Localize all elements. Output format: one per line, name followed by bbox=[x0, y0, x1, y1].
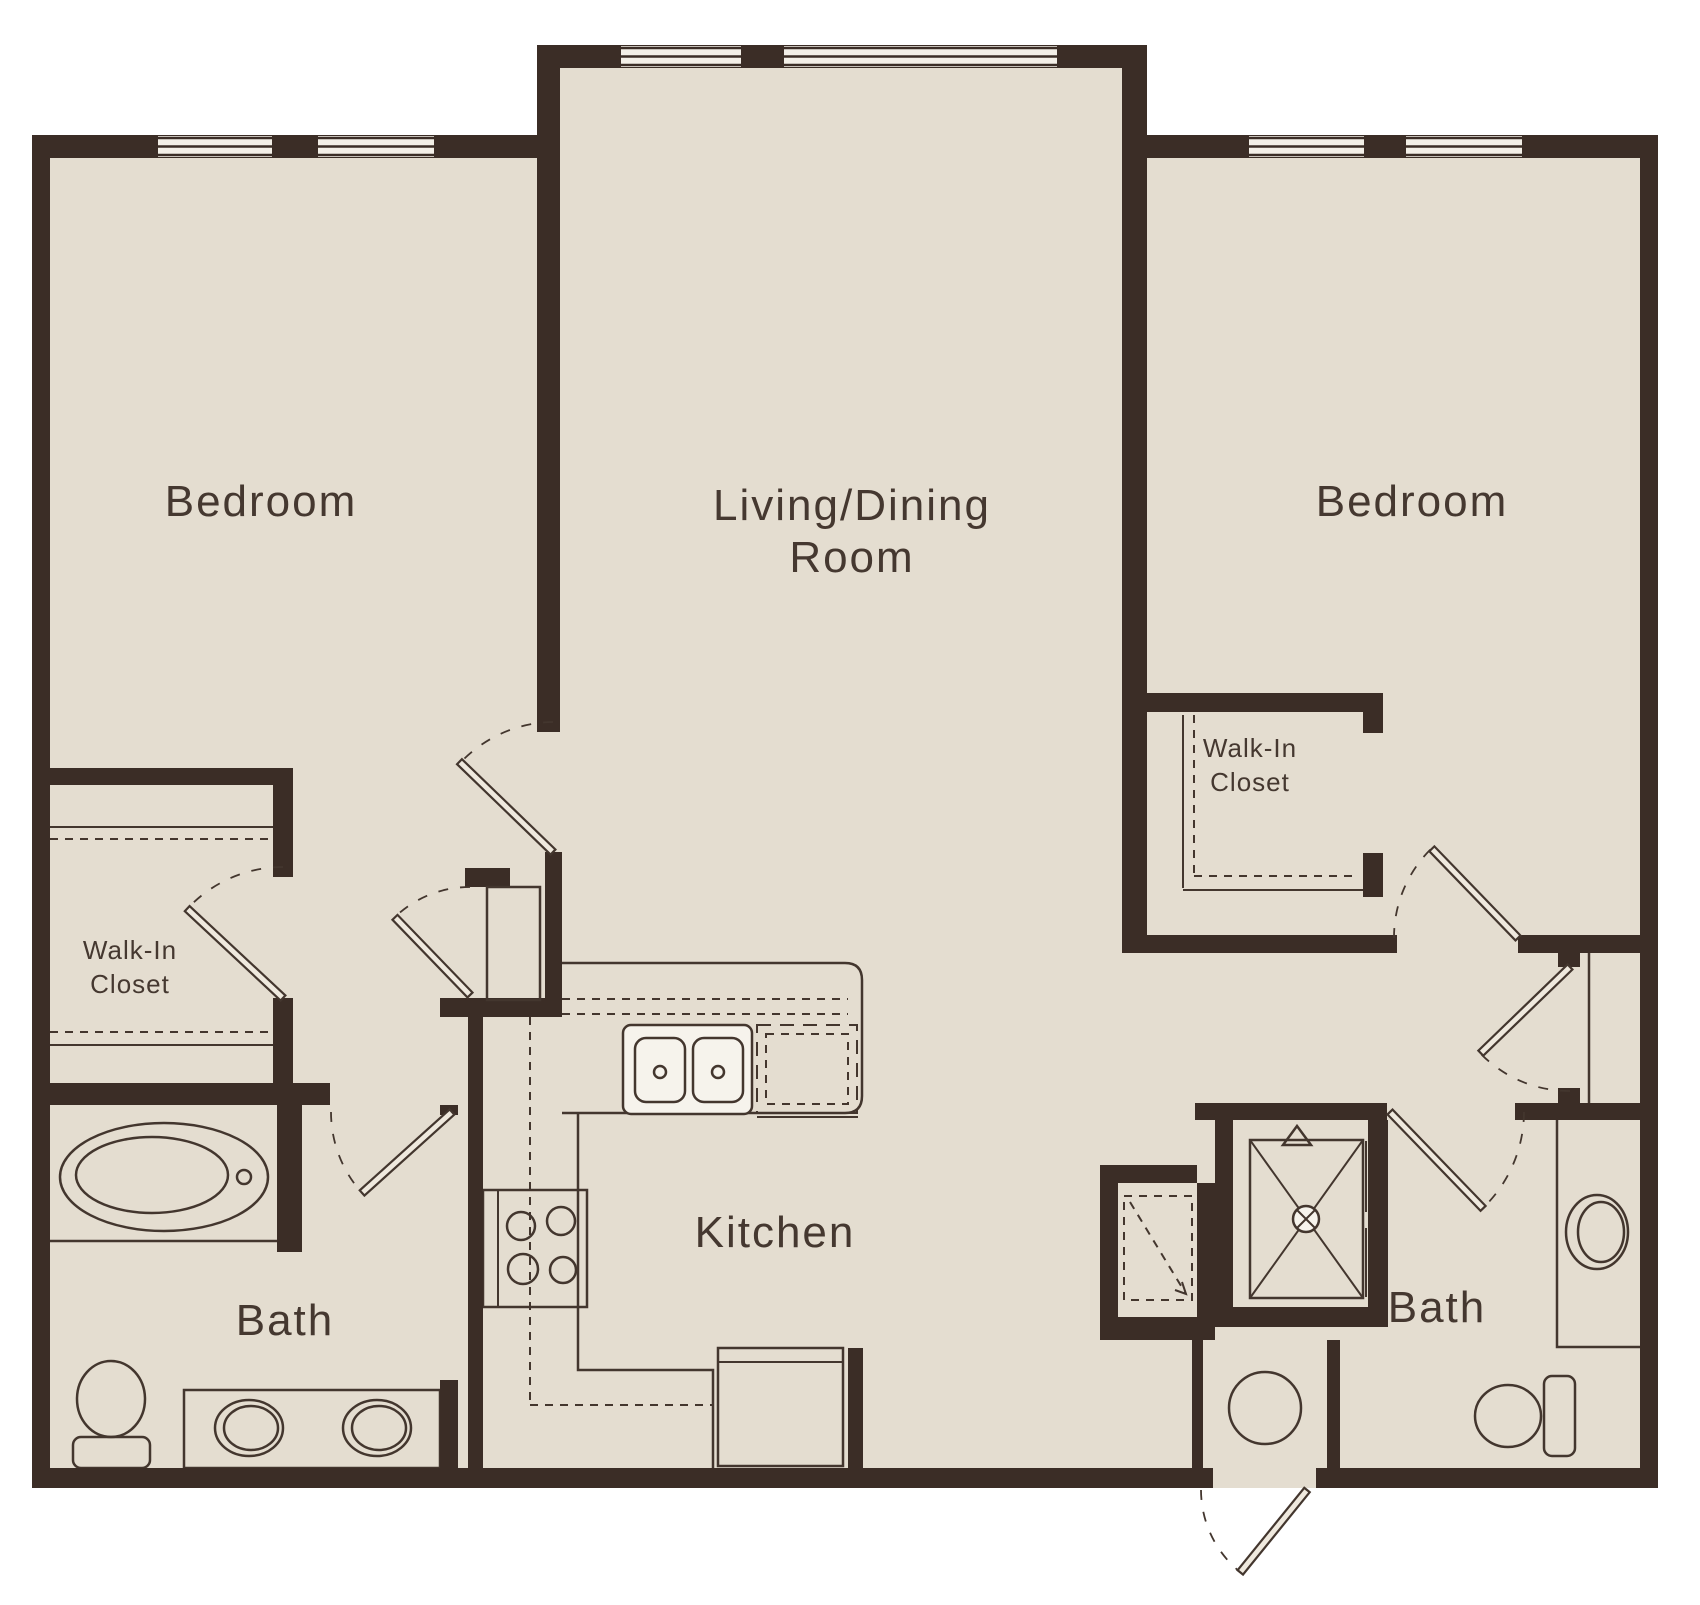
window bbox=[152, 136, 278, 157]
window bbox=[312, 136, 440, 157]
room-label-walkin-left-line2: Closet bbox=[90, 969, 170, 999]
floor-plan-page: Bedroom Living/Dining Room Bedroom Walk-… bbox=[0, 0, 1700, 1605]
window bbox=[1243, 136, 1370, 157]
room-label-bedroom-left: Bedroom bbox=[165, 477, 358, 526]
room-label-bedroom-right: Bedroom bbox=[1316, 477, 1509, 526]
window bbox=[778, 46, 1063, 67]
room-label-kitchen: Kitchen bbox=[695, 1208, 856, 1257]
room-label-bath-right: Bath bbox=[1388, 1283, 1487, 1332]
window bbox=[615, 46, 747, 67]
kitchen-sink-icon bbox=[623, 1025, 752, 1114]
door-entry bbox=[1201, 1488, 1310, 1575]
room-label-living-line2: Room bbox=[789, 533, 914, 582]
room-label-bath-left: Bath bbox=[236, 1296, 335, 1345]
floor-plan-canvas: Bedroom Living/Dining Room Bedroom Walk-… bbox=[0, 0, 1700, 1605]
room-label-living-line1: Living/Dining bbox=[713, 481, 991, 530]
unit-floor bbox=[32, 45, 1658, 1488]
room-label-walkin-left-line1: Walk-In bbox=[83, 935, 177, 965]
room-label-walkin-right-line2: Closet bbox=[1210, 767, 1290, 797]
room-label-walkin-right-line1: Walk-In bbox=[1203, 733, 1297, 763]
window bbox=[1400, 136, 1528, 157]
